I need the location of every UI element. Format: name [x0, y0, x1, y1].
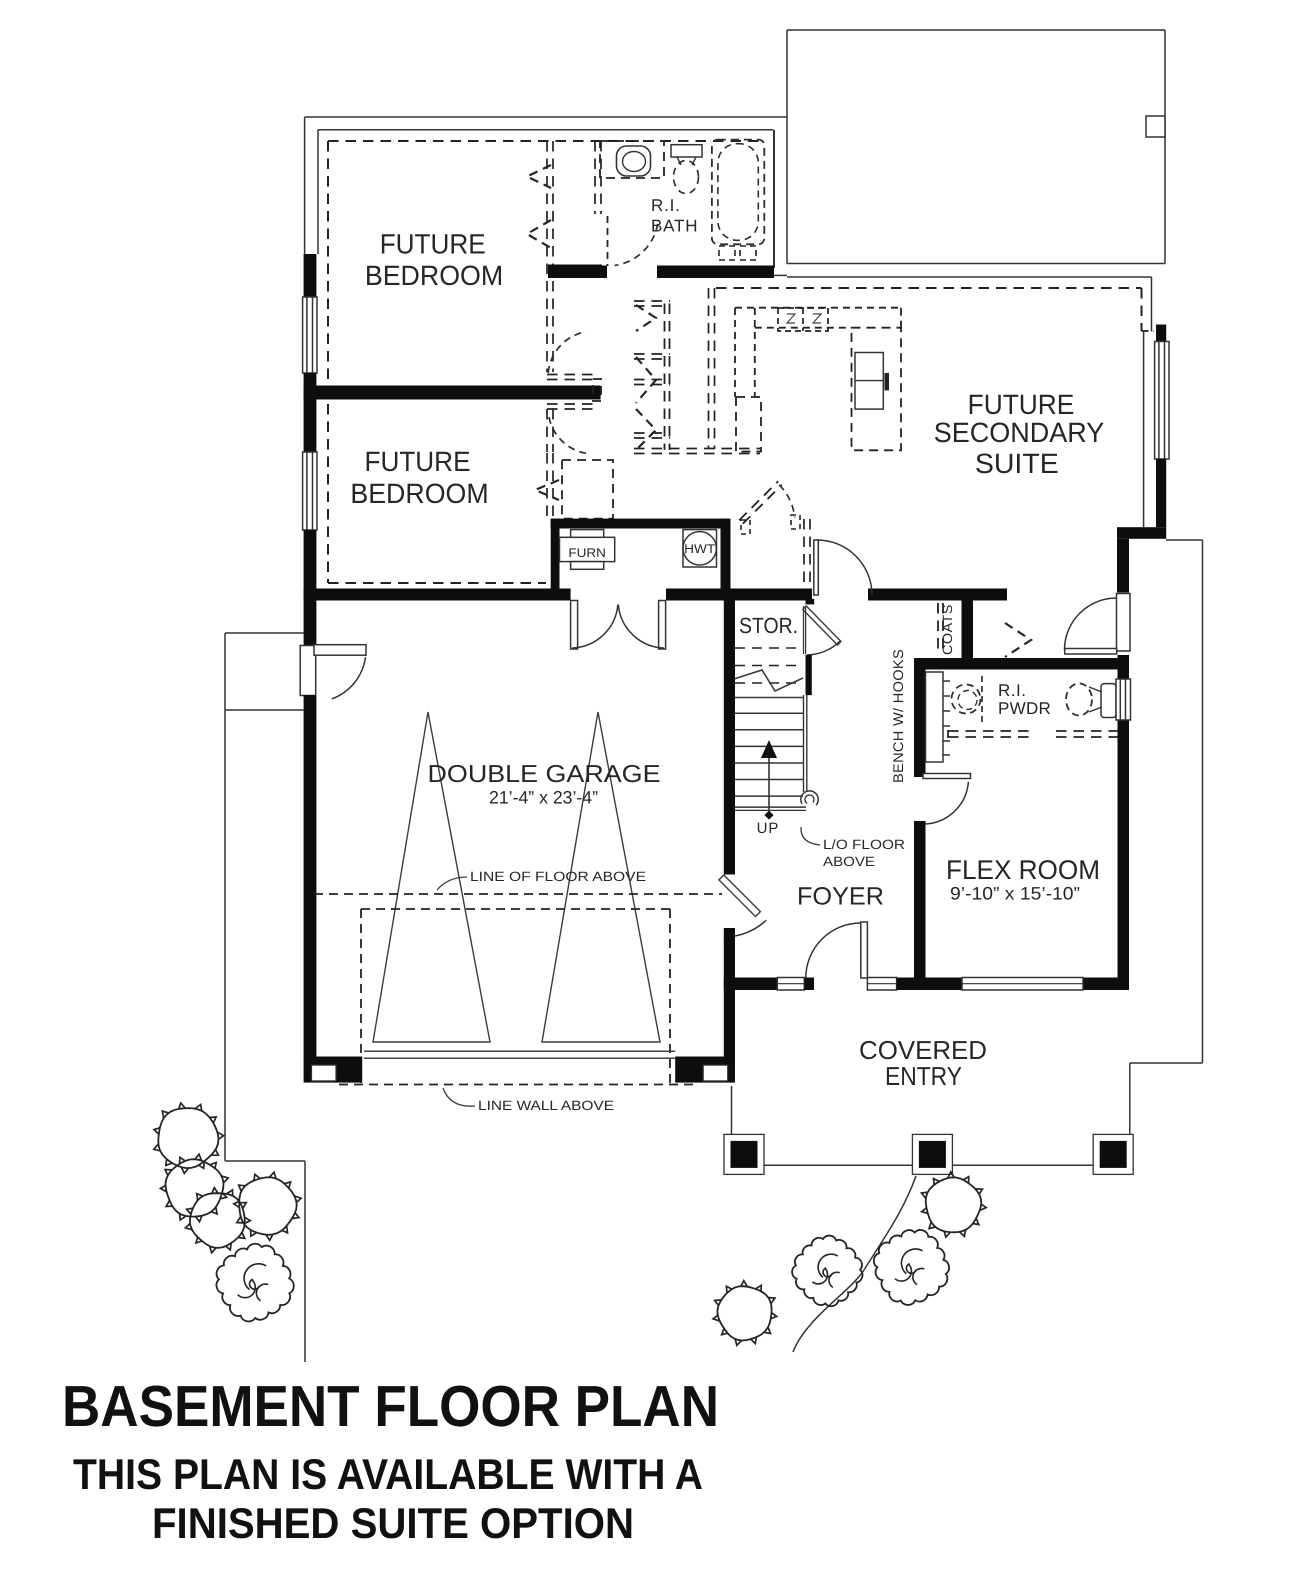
svg-text:9’-10” x 15’-10”: 9’-10” x 15’-10”	[950, 884, 1080, 904]
svg-text:FLEX ROOM: FLEX ROOM	[946, 855, 1100, 885]
svg-text:BEDROOM: BEDROOM	[350, 478, 488, 509]
svg-text:SECONDARY: SECONDARY	[934, 417, 1105, 448]
svg-text:R.I.: R.I.	[651, 196, 681, 215]
svg-text:FINISHED SUITE OPTION: FINISHED SUITE OPTION	[152, 1500, 634, 1548]
svg-text:PWDR: PWDR	[998, 699, 1051, 718]
svg-text:ABOVE: ABOVE	[823, 854, 875, 869]
svg-text:FOYER: FOYER	[797, 883, 884, 911]
svg-text:ENTRY: ENTRY	[885, 1061, 962, 1091]
svg-text:BASEMENT FLOOR PLAN: BASEMENT FLOOR PLAN	[62, 1374, 719, 1439]
svg-text:L/O FLOOR: L/O FLOOR	[823, 837, 905, 852]
svg-text:STOR.: STOR.	[739, 613, 798, 638]
svg-text:BENCH W/ HOOKS: BENCH W/ HOOKS	[890, 649, 906, 783]
svg-text:R.I.: R.I.	[998, 681, 1026, 700]
svg-text:DOUBLE GARAGE: DOUBLE GARAGE	[428, 761, 661, 788]
svg-text:BATH: BATH	[651, 217, 698, 236]
svg-text:SUITE: SUITE	[975, 448, 1059, 479]
svg-text:21’-4” x 23’-4”: 21’-4” x 23’-4”	[489, 788, 598, 808]
svg-text:LINE WALL ABOVE: LINE WALL ABOVE	[478, 1098, 614, 1113]
svg-text:FUTURE: FUTURE	[968, 389, 1075, 420]
svg-text:UP: UP	[757, 820, 780, 837]
svg-text:FURN: FURN	[568, 546, 606, 560]
svg-text:FUTURE: FUTURE	[365, 446, 471, 477]
svg-text:LINE OF FLOOR ABOVE: LINE OF FLOOR ABOVE	[470, 869, 646, 884]
svg-text:HWT: HWT	[684, 542, 715, 556]
svg-text:COATS: COATS	[940, 604, 955, 655]
svg-text:THIS PLAN IS AVAILABLE WITH A: THIS PLAN IS AVAILABLE WITH A	[73, 1451, 703, 1499]
svg-text:FUTURE: FUTURE	[380, 228, 486, 259]
svg-text:BEDROOM: BEDROOM	[365, 260, 503, 291]
